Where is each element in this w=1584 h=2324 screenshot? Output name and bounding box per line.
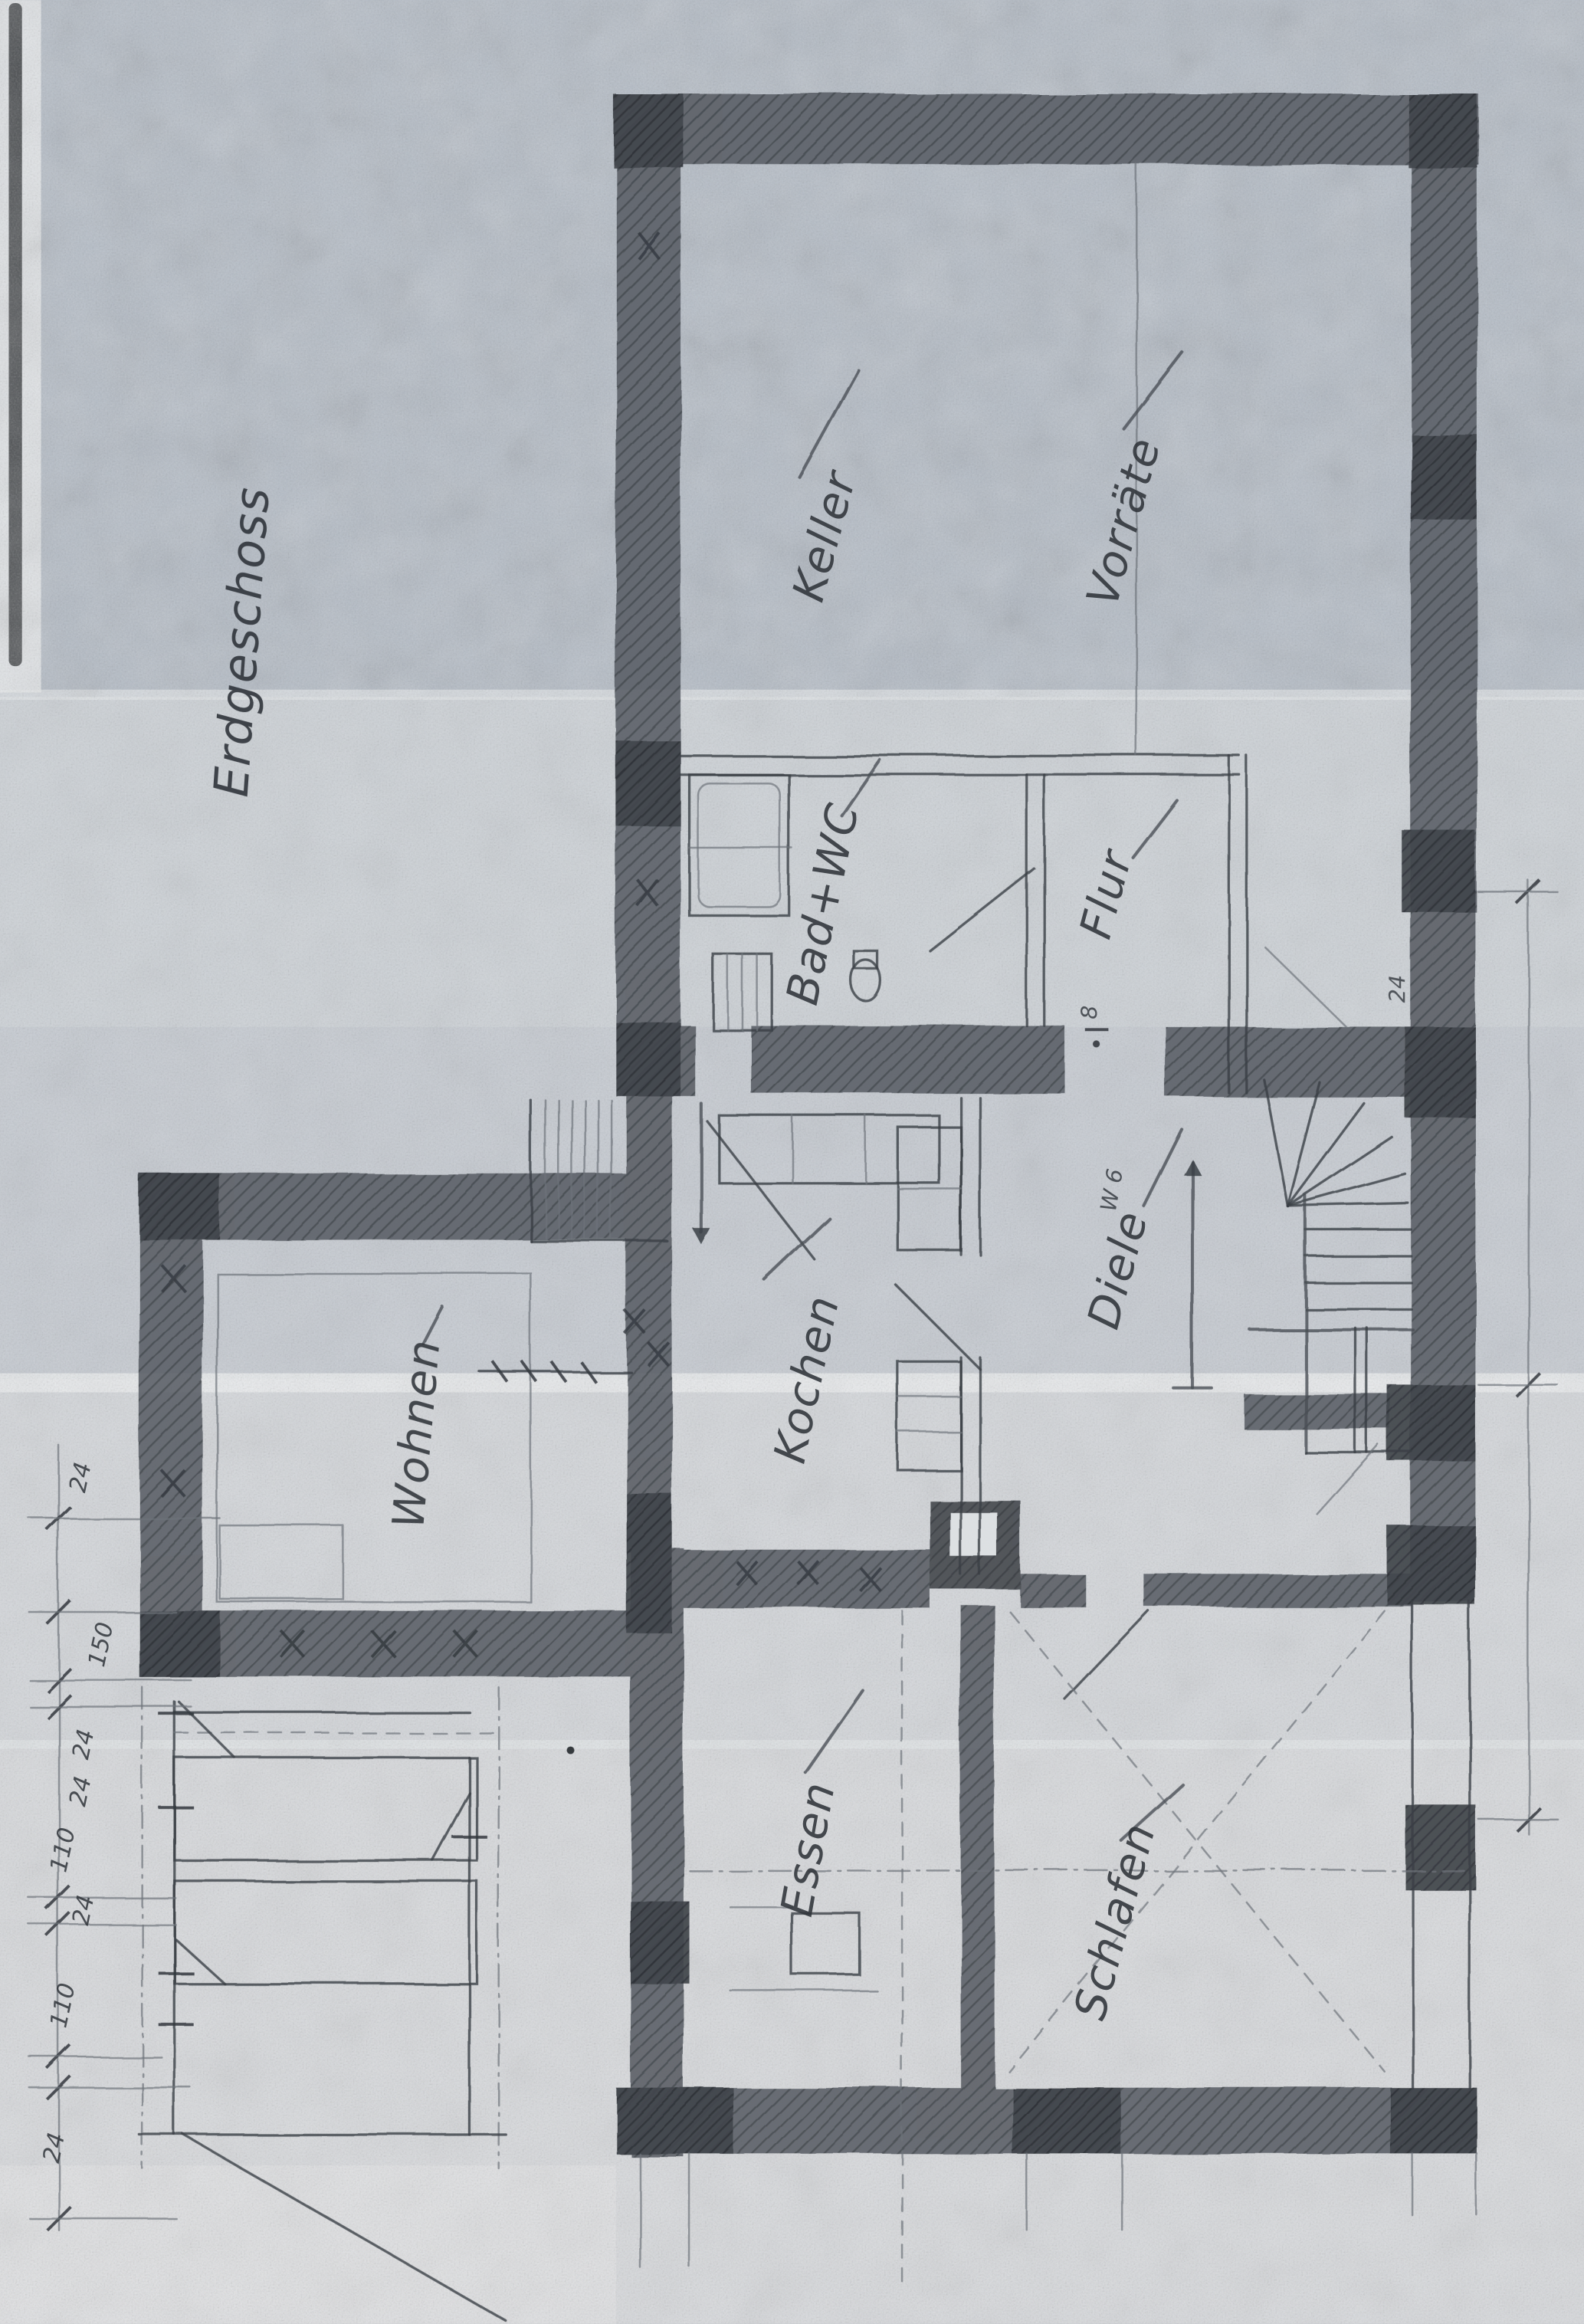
pier (1405, 1804, 1476, 1889)
pier (613, 94, 684, 168)
wall-bad-bottom-b (751, 1026, 1065, 1093)
wall-essen-schlafen (961, 1605, 995, 2089)
pier (631, 1902, 690, 1984)
wall-wohnen-left (139, 1173, 202, 1676)
pier (1411, 435, 1477, 520)
wall-diele-bottom-a (1019, 1574, 1085, 1607)
pier (1408, 94, 1477, 168)
wall-stair-schlafen (1244, 1393, 1390, 1429)
door-width-note: 8 (1077, 1006, 1103, 1019)
pier (1012, 2088, 1121, 2154)
wall-stair-top (1166, 1027, 1413, 1098)
pier (1388, 1526, 1476, 1605)
wall-thickness-note: 24 (1385, 975, 1411, 1003)
wall-right-stair (1411, 913, 1475, 1603)
pier (616, 1022, 680, 1096)
wall-top (613, 94, 1478, 165)
pier (1390, 2088, 1477, 2154)
pencil-dot (567, 1746, 575, 1754)
annotation-dot (1094, 1041, 1100, 1048)
pier (1402, 830, 1476, 912)
chimney-flue (950, 1512, 997, 1556)
pier (626, 1494, 671, 1633)
pier (139, 1173, 220, 1239)
pier (616, 2088, 733, 2154)
wall-kochen-essen (672, 1549, 930, 1608)
pier (616, 741, 680, 826)
floor-plan-scan: Erdgeschoss Keller Vorräte Bad+WC Flur K… (0, 0, 1584, 2324)
pier (1388, 1385, 1476, 1462)
pier (1405, 1027, 1476, 1118)
wall-diele-bottom-b (1144, 1574, 1412, 1607)
pier (139, 1611, 220, 1677)
